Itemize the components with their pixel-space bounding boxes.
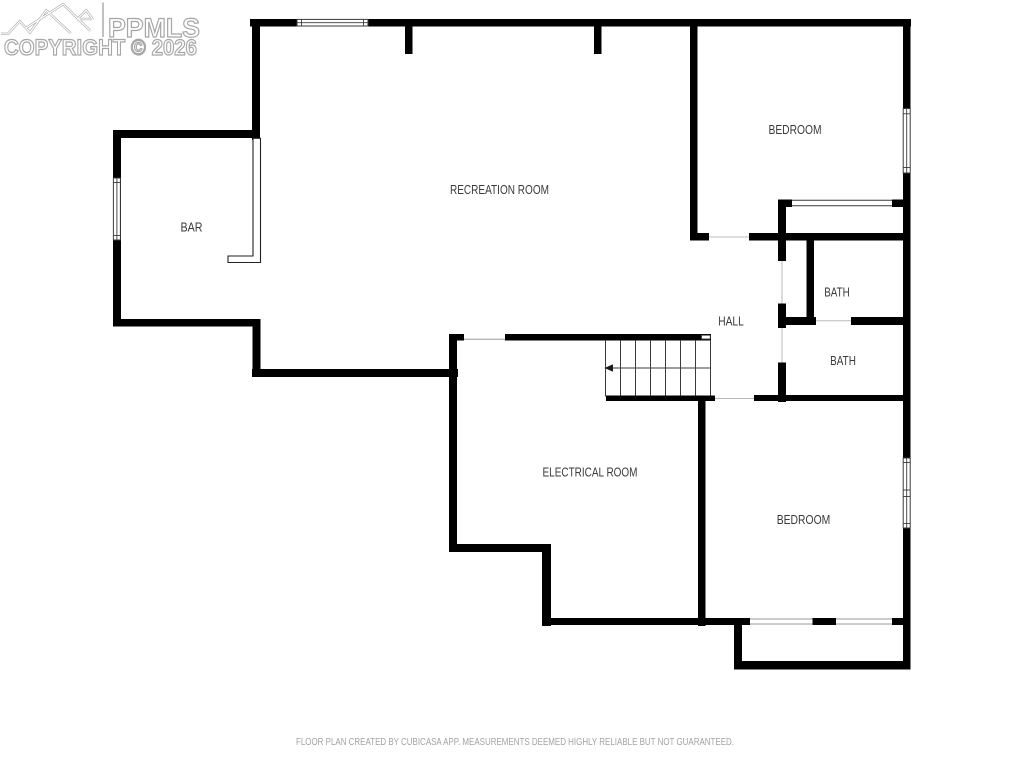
svg-text:BEDROOM: BEDROOM: [777, 512, 831, 527]
svg-text:HALL: HALL: [718, 314, 744, 329]
svg-text:ELECTRICAL ROOM: ELECTRICAL ROOM: [543, 465, 638, 480]
svg-text:COPYRIGHT © 2026: COPYRIGHT © 2026: [4, 35, 197, 60]
svg-text:BEDROOM: BEDROOM: [769, 122, 822, 137]
svg-text:BATH: BATH: [830, 353, 856, 368]
svg-text:BAR: BAR: [181, 220, 203, 235]
svg-text:FLOOR PLAN CREATED BY CUBICASA: FLOOR PLAN CREATED BY CUBICASA APP. MEAS…: [296, 737, 734, 748]
svg-text:BATH: BATH: [824, 285, 850, 300]
svg-text:RECREATION ROOM: RECREATION ROOM: [450, 182, 549, 197]
